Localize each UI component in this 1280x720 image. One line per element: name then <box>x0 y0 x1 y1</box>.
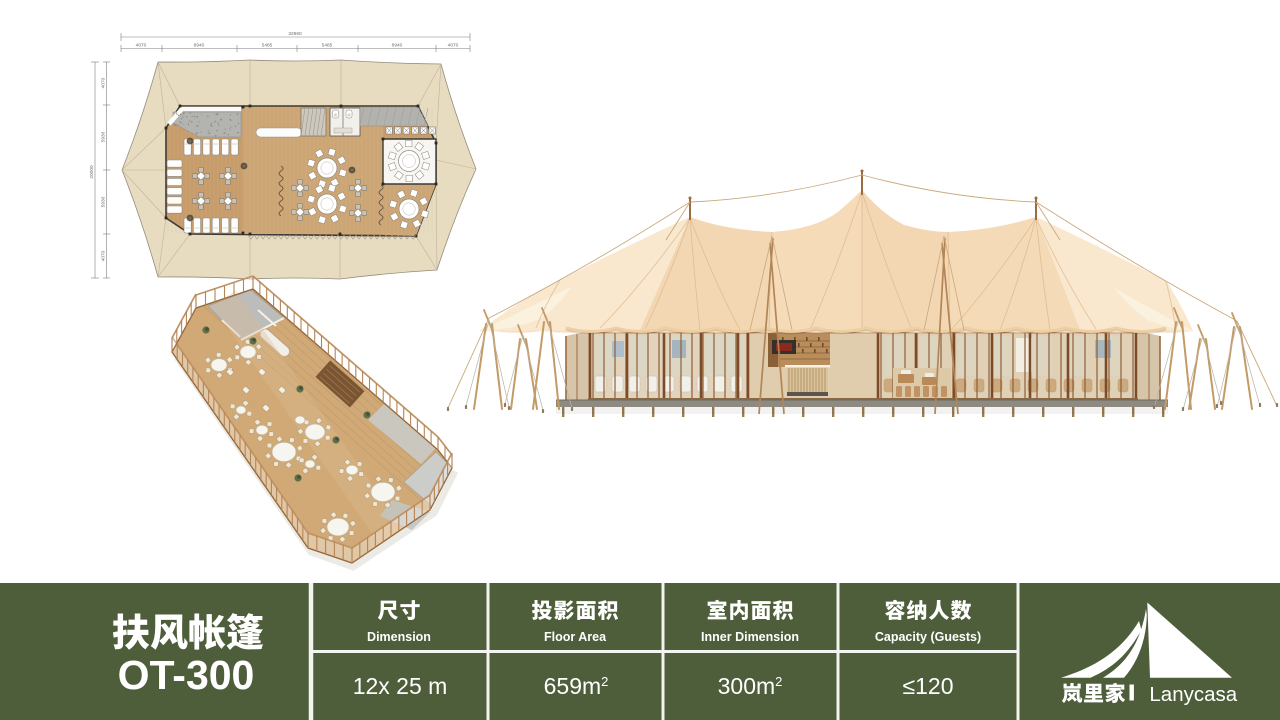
svg-text:Capacity (Guests): Capacity (Guests) <box>875 630 981 644</box>
svg-text:Inner Dimension: Inner Dimension <box>701 630 799 644</box>
svg-text:8940: 8940 <box>194 43 205 49</box>
svg-text:5485: 5485 <box>262 43 273 49</box>
svg-text:32960: 32960 <box>288 31 302 37</box>
svg-text:4070: 4070 <box>101 77 107 88</box>
svg-text:5930: 5930 <box>101 131 107 142</box>
svg-text:4070: 4070 <box>448 43 459 49</box>
svg-text:659m2: 659m2 <box>544 673 609 699</box>
svg-text:Dimension: Dimension <box>367 630 431 644</box>
svg-text:12x 25 m: 12x 25 m <box>353 673 448 699</box>
svg-text:4070: 4070 <box>136 43 147 49</box>
svg-text:Floor Area: Floor Area <box>544 630 607 644</box>
svg-text:20000: 20000 <box>89 165 95 179</box>
svg-text:4070: 4070 <box>101 250 107 261</box>
svg-text:5930: 5930 <box>101 196 107 207</box>
svg-text:OT-300: OT-300 <box>118 652 255 698</box>
svg-text:Lanycasa: Lanycasa <box>1149 683 1237 706</box>
svg-text:5485: 5485 <box>322 43 333 49</box>
svg-text:≤120: ≤120 <box>903 673 954 699</box>
svg-text:300m2: 300m2 <box>718 673 783 699</box>
svg-text:8940: 8940 <box>392 43 403 49</box>
